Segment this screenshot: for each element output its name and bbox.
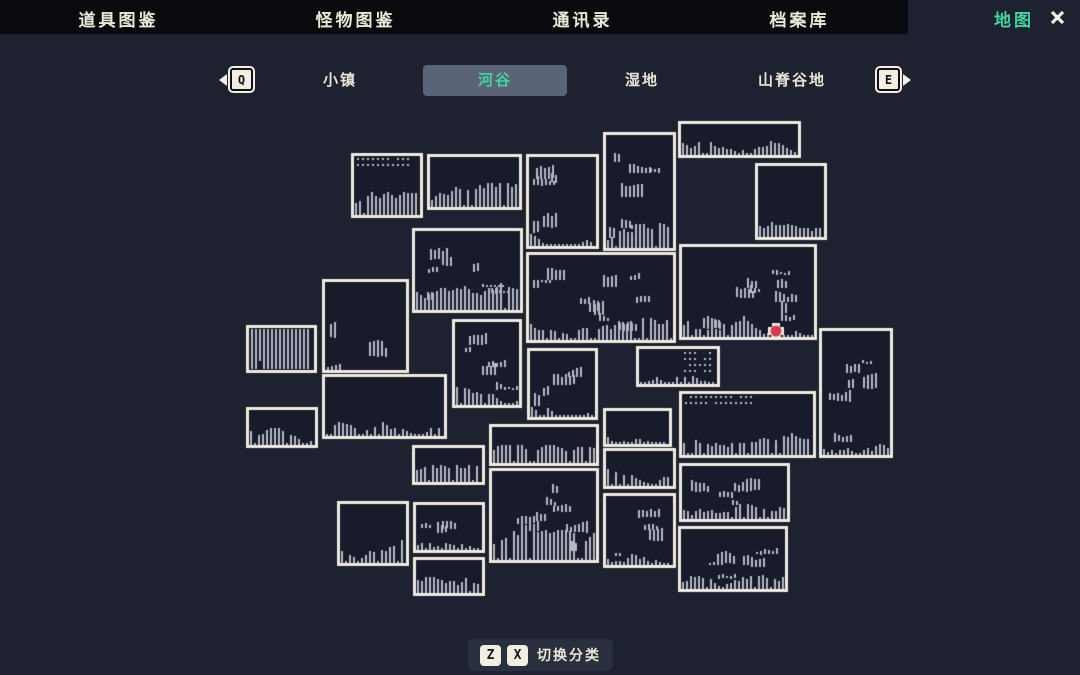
next-area-button[interactable]: E <box>877 68 911 91</box>
key-hint-z: Z <box>480 645 501 666</box>
top-nav-right: 地图 <box>994 0 1080 34</box>
nav-item-item-catalog[interactable]: 道具图鉴 <box>79 4 159 31</box>
footer-key-hints: Z X 切换分类 <box>468 639 613 671</box>
nav-item-map-active[interactable]: 地图 <box>994 4 1034 31</box>
key-hint-q: Q <box>230 68 253 91</box>
tab-town[interactable]: 小镇 <box>270 65 410 96</box>
right-arrow-icon <box>903 74 911 86</box>
nav-item-archive[interactable]: 档案库 <box>770 4 830 31</box>
prev-area-button[interactable]: Q <box>219 68 253 91</box>
close-button[interactable] <box>1049 9 1066 26</box>
tab-wetland[interactable]: 湿地 <box>572 65 712 96</box>
close-icon <box>1049 9 1066 26</box>
top-nav-bar: 道具图鉴 怪物图鉴 通讯录 档案库 <box>0 0 908 34</box>
nav-item-contacts[interactable]: 通讯录 <box>553 4 613 31</box>
key-hint-e: E <box>877 68 900 91</box>
left-arrow-icon <box>219 74 227 86</box>
tab-ridge-valley[interactable]: 山脊谷地 <box>722 65 862 96</box>
map-canvas <box>0 0 1080 675</box>
tab-river-valley[interactable]: 河谷 <box>423 65 567 96</box>
nav-item-monster-catalog[interactable]: 怪物图鉴 <box>316 4 396 31</box>
key-hint-x: X <box>507 645 528 666</box>
switch-category-label: 切换分类 <box>534 645 601 665</box>
